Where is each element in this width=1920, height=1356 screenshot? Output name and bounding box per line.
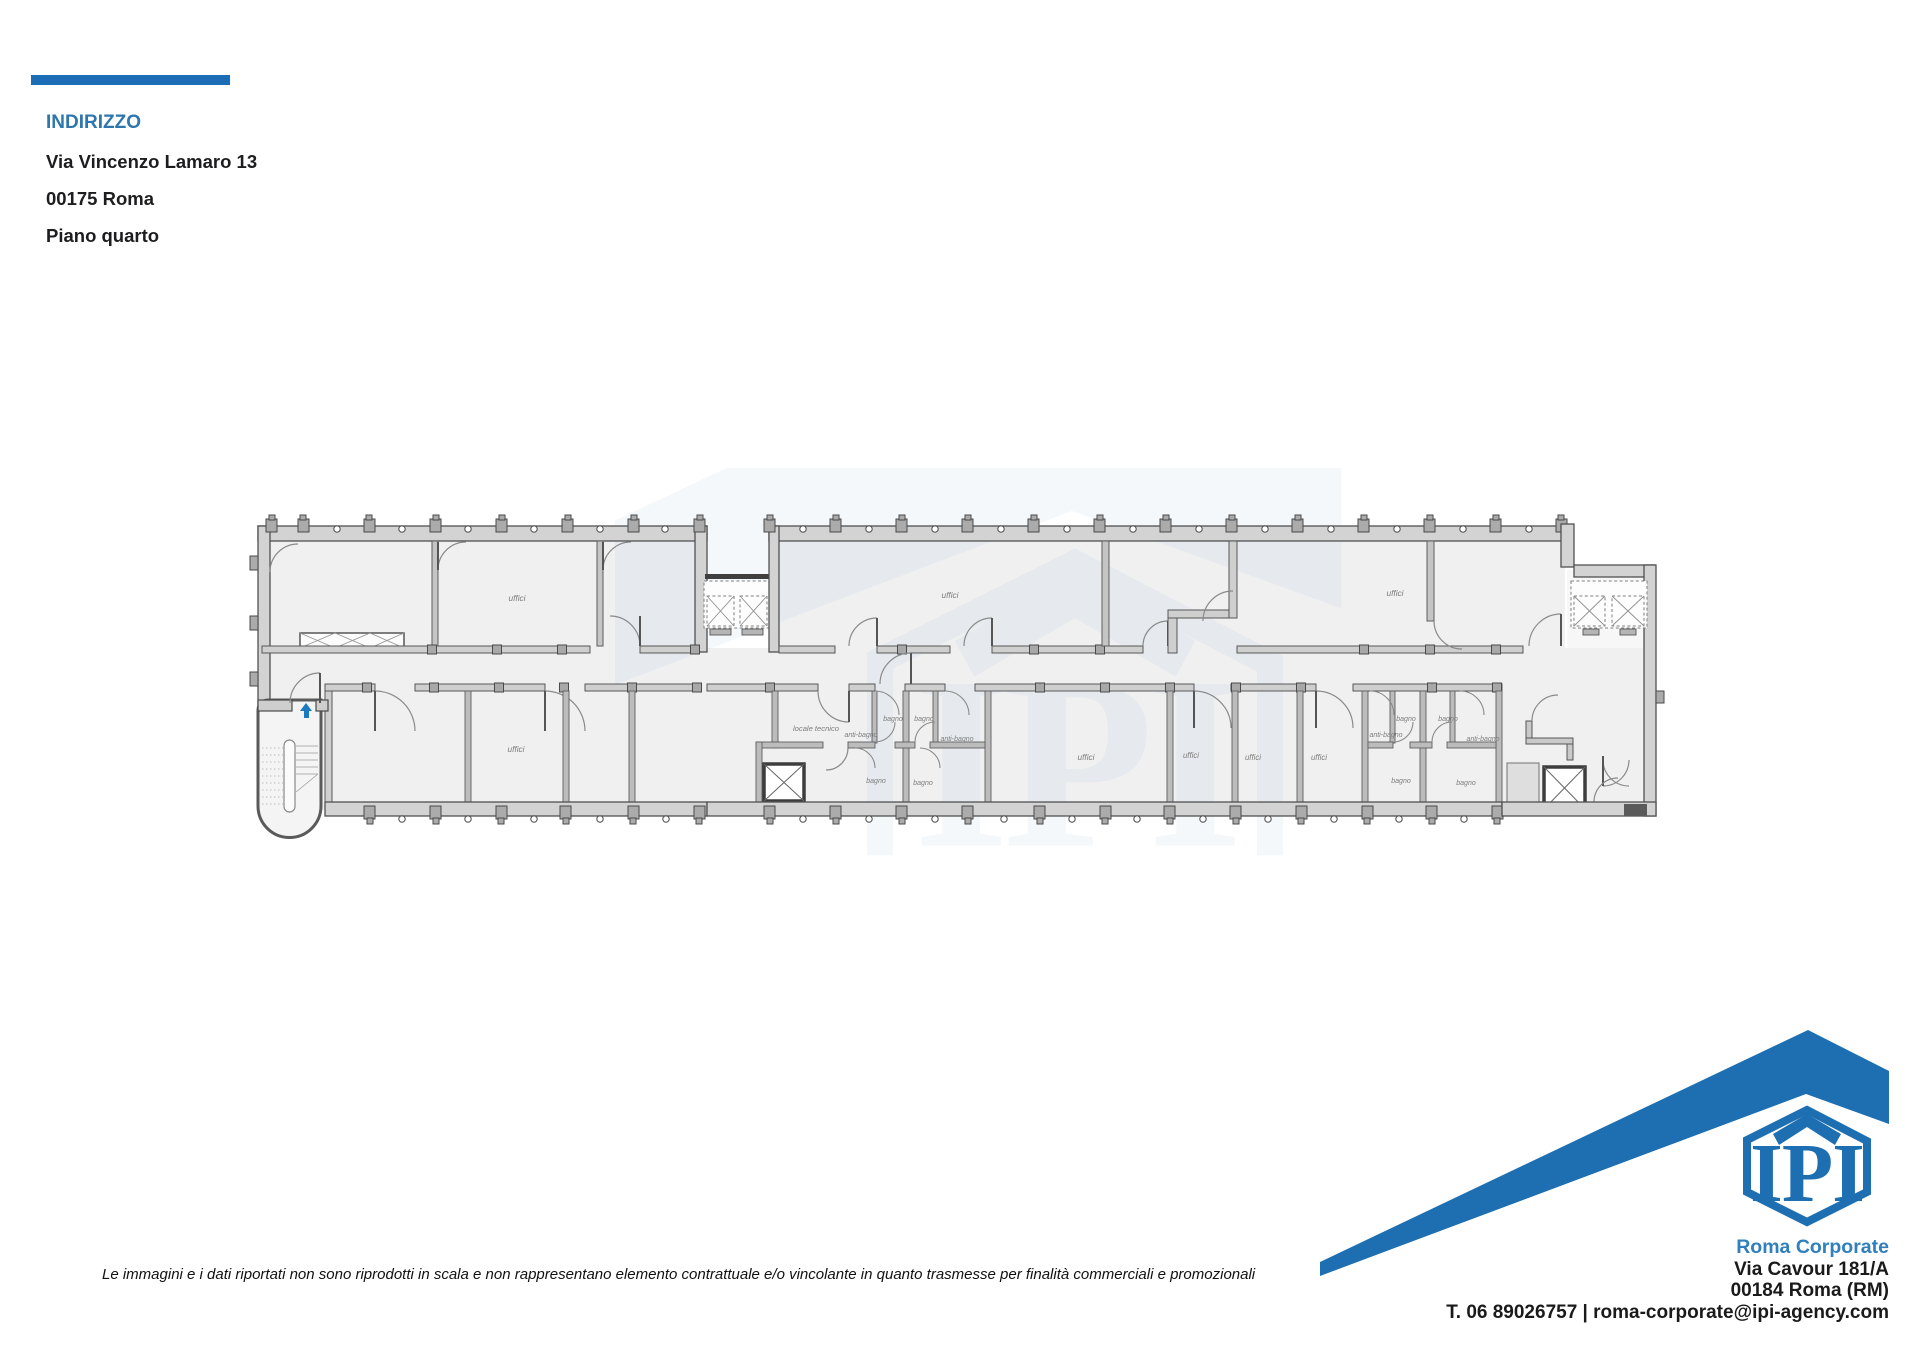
svg-text:bagno: bagno: [913, 780, 933, 787]
svg-text:bagno: bagno: [1396, 716, 1416, 723]
svg-text:anti-bagno: anti-bagno: [1369, 732, 1402, 739]
svg-text:bagno: bagno: [1438, 716, 1458, 723]
svg-text:locale tecnico: locale tecnico: [793, 724, 839, 733]
svg-text:bagno: bagno: [883, 716, 903, 723]
svg-text:uffici: uffici: [1386, 588, 1404, 598]
svg-text:IPI: IPI: [913, 627, 1237, 900]
svg-text:uffici: uffici: [507, 744, 525, 754]
svg-text:bagno: bagno: [914, 716, 934, 723]
svg-text:uffici: uffici: [941, 590, 959, 600]
svg-text:IPI: IPI: [1750, 1127, 1864, 1220]
svg-text:uffici: uffici: [508, 593, 526, 603]
svg-text:uffici: uffici: [1311, 753, 1327, 762]
svg-text:anti-bagno: anti-bagno: [1466, 736, 1499, 743]
svg-text:anti-bagno: anti-bagno: [844, 732, 877, 739]
svg-text:uffici: uffici: [1245, 753, 1261, 762]
svg-text:bagno: bagno: [1456, 780, 1476, 787]
svg-text:uffici: uffici: [1183, 751, 1199, 760]
svg-text:anti-bagno: anti-bagno: [940, 736, 973, 743]
svg-text:uffici: uffici: [1077, 752, 1095, 762]
svg-text:bagno: bagno: [866, 778, 886, 785]
svg-text:bagno: bagno: [1391, 778, 1411, 785]
